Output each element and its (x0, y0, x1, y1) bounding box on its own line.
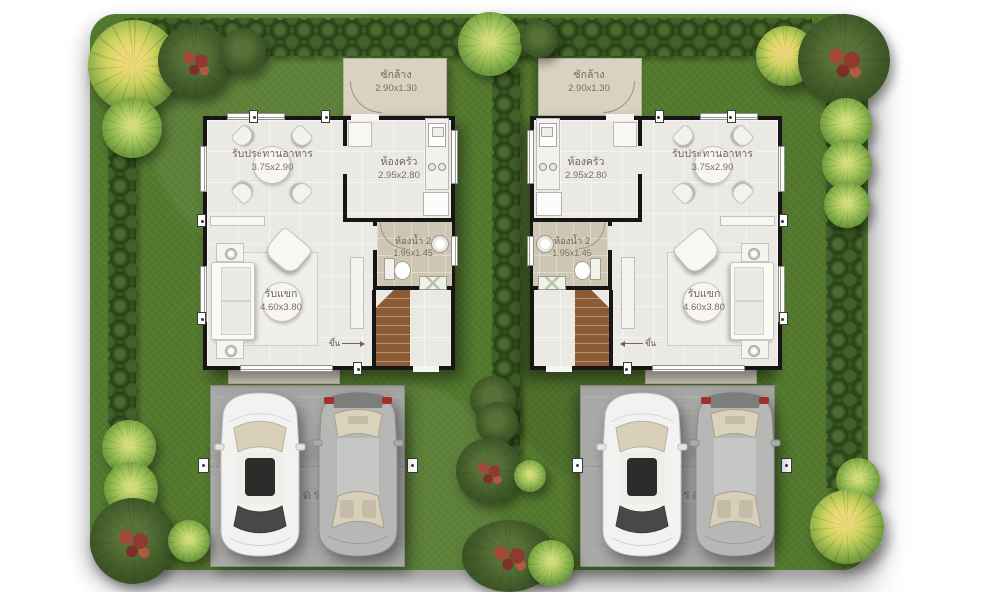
bush-icon (220, 28, 266, 74)
tree-icon (102, 98, 162, 158)
laundry-door (351, 114, 379, 120)
tree-icon (168, 520, 210, 562)
gate-post (572, 458, 583, 473)
wall (608, 218, 612, 226)
silver-car (312, 388, 404, 560)
wall-marker (779, 214, 788, 227)
laundry-door (606, 114, 634, 120)
gate-post (198, 458, 209, 473)
door-swing-arc (350, 81, 382, 113)
back-door (413, 366, 439, 372)
wall-marker (353, 362, 362, 375)
tree-icon (824, 182, 870, 228)
wall-marker (249, 110, 258, 123)
wall-marker (197, 214, 206, 227)
white-car (214, 388, 306, 560)
kitchen-label: ห้องครัว 2.95x2.80 (536, 156, 636, 182)
window (527, 130, 534, 184)
flower-bush-icon (798, 14, 890, 106)
window (778, 146, 785, 192)
up-arrow-icon (342, 343, 364, 344)
sliding-door (240, 365, 333, 372)
toilet (384, 258, 395, 280)
door-swing-arc (603, 81, 635, 113)
stairs-up-label: ขึ้น (621, 335, 656, 347)
tree-icon (458, 12, 522, 76)
flower-bush-icon (456, 438, 522, 504)
tree-icon (514, 460, 546, 492)
flower-bush-icon (90, 498, 176, 584)
stairs-up-label: ขึ้น (329, 335, 364, 347)
wall (372, 290, 376, 366)
wall (530, 218, 642, 222)
kitchen-label: ห้องครัว 2.95x2.80 (349, 156, 449, 182)
sink (428, 123, 446, 147)
wall-marker (197, 312, 206, 325)
gate-post (407, 458, 418, 473)
side-table-lamp (216, 243, 244, 262)
door-mat (538, 276, 566, 290)
hedge-left (108, 126, 136, 456)
wall-marker (623, 362, 632, 375)
living-label: รับแขก 4.60x3.80 (650, 288, 758, 314)
back-door (546, 366, 572, 372)
white-car (596, 388, 688, 560)
fridge (536, 192, 562, 216)
flower-bush-icon (158, 24, 232, 98)
laundry-pad: ซักล้าง 2.90x1.30 (538, 58, 642, 116)
wall-marker (727, 110, 736, 123)
wall (343, 174, 347, 222)
site-plan: จอดรถ ซักล้าง 2.90x1.30 (0, 0, 1000, 592)
up-arrow-icon (621, 343, 643, 344)
sink (539, 123, 557, 147)
wall (343, 116, 347, 146)
toilet (590, 258, 601, 280)
window (451, 130, 458, 184)
sideboard (210, 216, 265, 226)
tree-icon (528, 540, 574, 586)
window (200, 146, 207, 192)
wall (373, 218, 377, 226)
tv-console (350, 257, 364, 329)
wall (609, 290, 613, 366)
bathroom-label: ห้องน้ำ 2 1.95x1.45 (369, 236, 457, 260)
side-table-lamp (216, 340, 244, 359)
laundry-pad: ซักล้าง 2.90x1.30 (343, 58, 447, 116)
bathroom-label: ห้องน้ำ 2 1.95x1.45 (528, 236, 616, 260)
gate-post (781, 458, 792, 473)
wall (343, 218, 455, 222)
fridge (423, 192, 449, 216)
wall-marker (655, 110, 664, 123)
tv-console (621, 257, 635, 329)
side-table-lamp (741, 340, 769, 359)
door-mat (419, 276, 447, 290)
bush-icon (520, 20, 558, 58)
kitchen-cabinet (613, 122, 637, 147)
wall-marker (779, 312, 788, 325)
dining-label: รับประทานอาหาร 3.75x2.90 (215, 148, 330, 174)
dining-label: รับประทานอาหาร 3.75x2.90 (655, 148, 770, 174)
sideboard (720, 216, 775, 226)
wall-marker (321, 110, 330, 123)
tree-icon (810, 490, 884, 564)
sliding-door (652, 365, 745, 372)
wall (638, 116, 642, 146)
house-right: จอดรถ ซักล้าง 2.90x1.30 (530, 116, 782, 370)
house-left: จอดรถ ซักล้าง 2.90x1.30 (203, 116, 455, 370)
side-table-lamp (741, 243, 769, 262)
kitchen-cabinet (348, 122, 372, 147)
living-label: รับแขก 4.60x3.80 (227, 288, 335, 314)
wall (638, 174, 642, 222)
silver-car (689, 388, 781, 560)
